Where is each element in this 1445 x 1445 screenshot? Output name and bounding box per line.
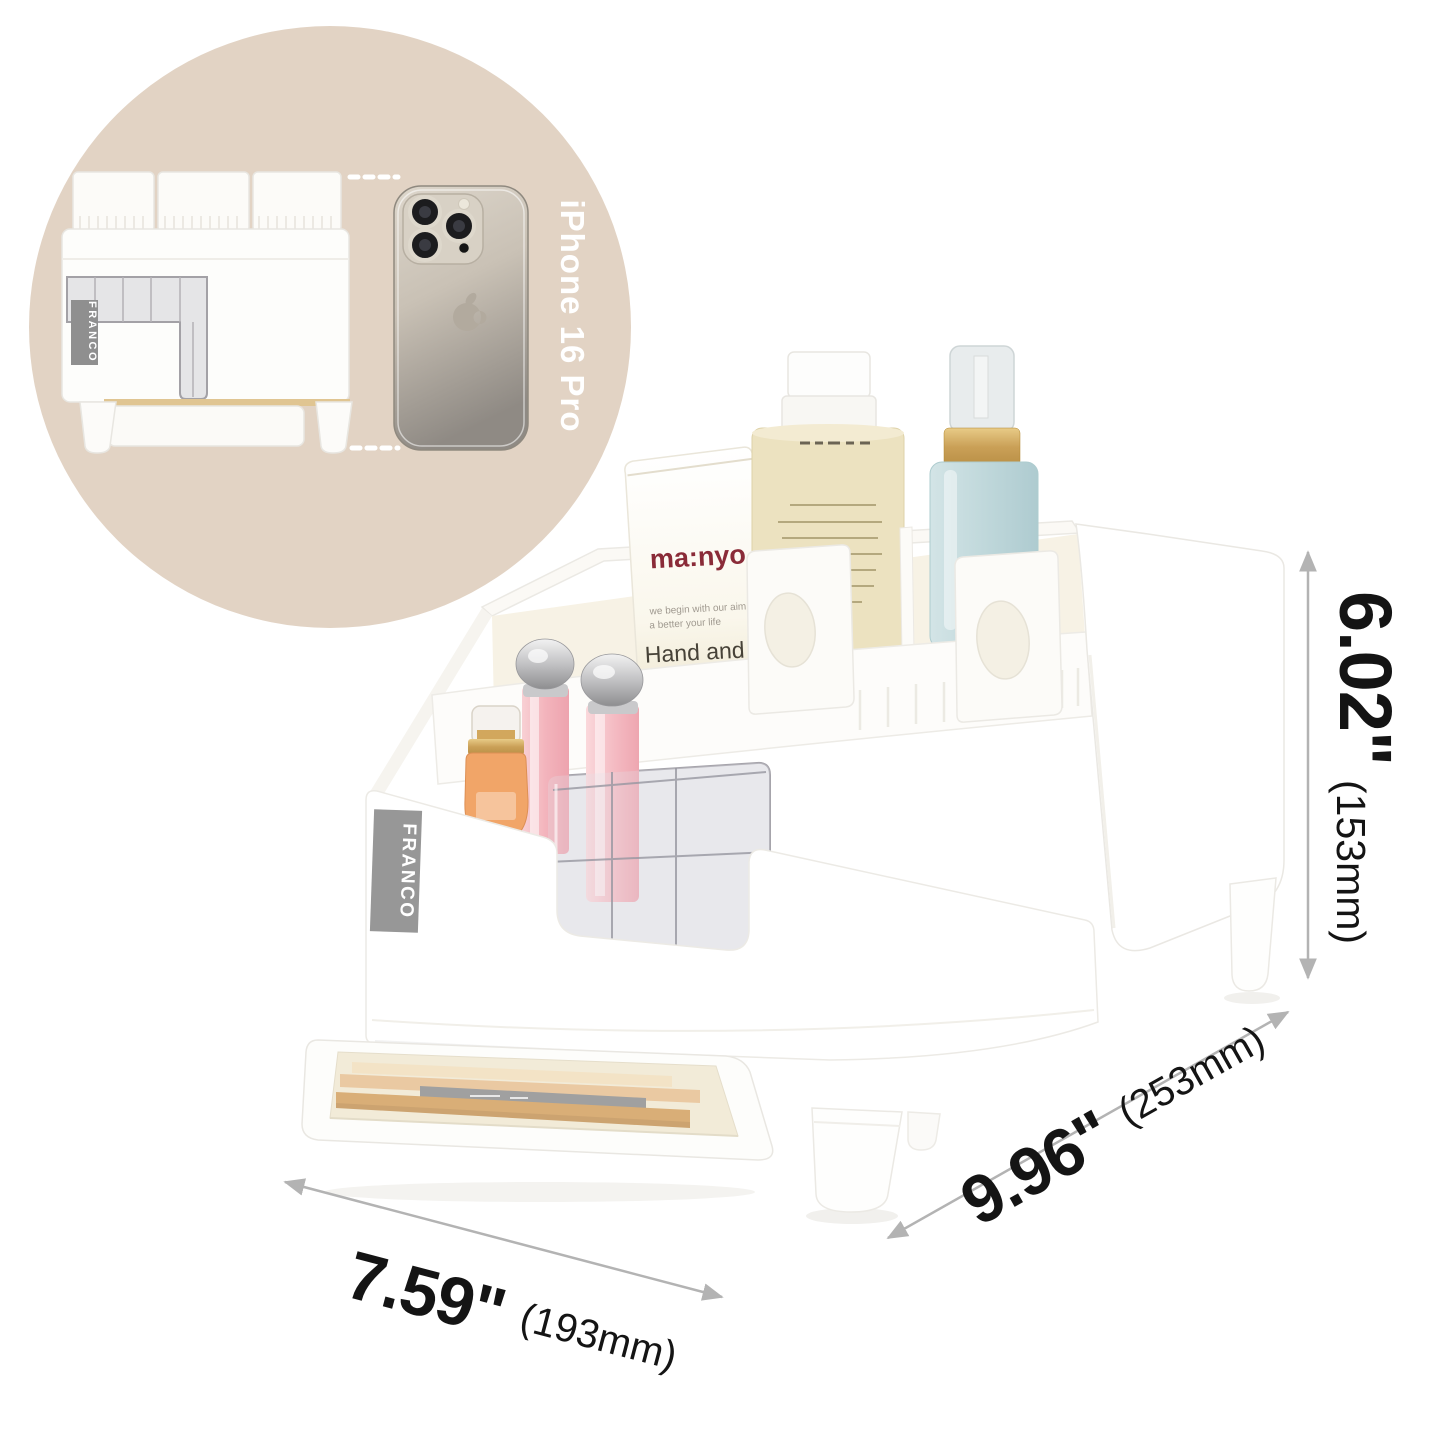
dimension-height: 6.02" (153mm) — [1308, 552, 1407, 978]
product-dimension-infographic: FRANCO — [0, 0, 1445, 1445]
height-inches-label: 6.02" — [1324, 591, 1407, 765]
width-inches-label: 7.59" — [339, 1237, 513, 1351]
divider-tab-left — [747, 545, 854, 714]
flash-icon — [459, 199, 470, 210]
brand-label-text: FRANCO — [395, 823, 419, 920]
acrylic-grid-lines — [548, 763, 770, 960]
inset-brand-text: FRANCO — [86, 301, 98, 363]
brand-label: FRANCO — [370, 809, 422, 933]
manyo-brand-text: ma:nyo — [649, 539, 746, 574]
iphone-comparison-label: iPhone 16 Pro — [554, 199, 591, 432]
dimension-width: 7.59" (193mm) — [285, 1182, 722, 1396]
back-divider-edge — [900, 527, 914, 654]
inset-drawer — [108, 406, 304, 446]
inset-iphone — [394, 186, 528, 450]
scene-canvas: FRANCO — [0, 0, 1445, 1445]
inset-brand-label: FRANCO — [71, 300, 98, 365]
height-mm-label: (153mm) — [1328, 780, 1374, 944]
divider-tab-right — [955, 551, 1062, 722]
width-mm-label: (193mm) — [516, 1295, 682, 1378]
depth-inches-label: 9.96" — [949, 1096, 1125, 1241]
depth-mm-label: (253mm) — [1111, 1017, 1272, 1134]
size-comparison-inset: FRANCO — [29, 26, 631, 628]
inset-drawer-slot — [104, 399, 350, 406]
organizer-drawer — [302, 1040, 773, 1202]
